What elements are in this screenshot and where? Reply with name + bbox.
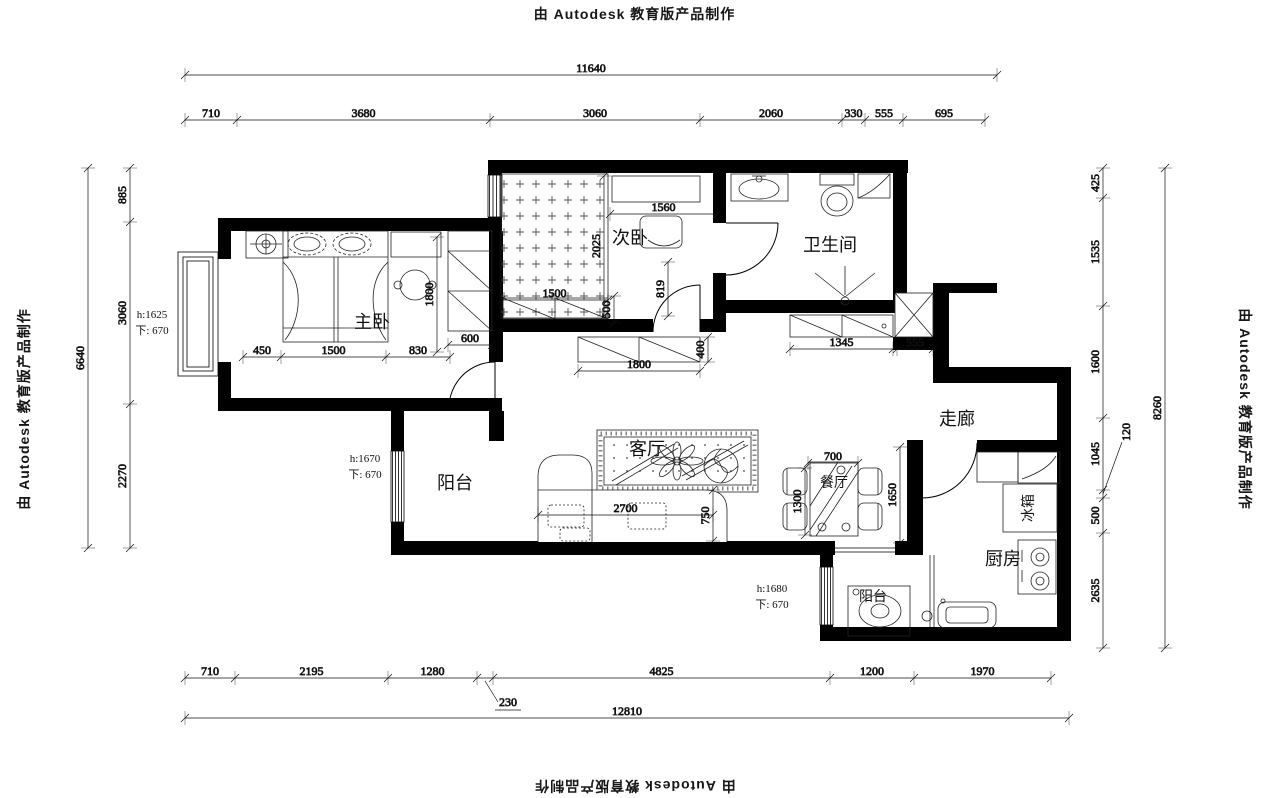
dim-tatami-1500-label: 1500 — [543, 286, 567, 300]
window-balcony-left — [391, 451, 404, 522]
bath-corner-shelf — [858, 174, 890, 198]
dim-top-segments-label: 710 — [202, 106, 220, 120]
dim-right-segments-label: 1045 — [1088, 442, 1102, 466]
dim-table-1300: 1300 — [790, 464, 812, 539]
bath-cabinet — [790, 315, 893, 337]
dim-right-segments-label: 2635 — [1088, 579, 1102, 603]
dim-bed-row-label: 1500 — [322, 343, 346, 357]
dim-bed-row-label: 830 — [409, 343, 427, 357]
dim-left-total-label: 6640 — [73, 346, 87, 370]
window-second-bedroom — [488, 175, 502, 217]
room-label-master: 主卧 — [354, 312, 390, 333]
dim-hallcab-1800-label: 1800 — [627, 357, 651, 371]
dim-hallcab-1800: 1800 — [574, 357, 704, 378]
dim-bottom-segments: 71021951280482512001970 — [181, 664, 1055, 685]
toilet-icon — [820, 174, 854, 216]
dim-top-total-label: 11640 — [576, 61, 606, 75]
dim-table-700-label: 700 — [824, 449, 842, 463]
balcony-bottom-threshold — [833, 548, 895, 552]
watermark-top: 由 Autodesk 教育版产品制作 — [534, 4, 736, 24]
room-label-kitchen: 厨房 — [985, 549, 1021, 570]
ceiling-lamp-icon — [246, 231, 288, 258]
dim-left-total: 6640 — [73, 164, 95, 552]
dim-sofa-2700-label: 2700 — [614, 501, 638, 515]
dim-right-total-label: 8260 — [1150, 396, 1164, 420]
room-label-balcony_left: 阳台 — [437, 473, 473, 494]
dim-dining-1650-label: 1650 — [885, 483, 899, 507]
floorplan-canvas: 由 Autodesk 教育版产品制作 由 Autodesk 教育版产品制作 由 … — [0, 0, 1269, 798]
room-label-bathroom: 卫生间 — [803, 235, 857, 256]
window-note-master-height: h:1625 — [137, 309, 168, 321]
door-bathroom — [726, 223, 778, 275]
dim-dining-1650: 1650 — [885, 443, 907, 547]
window-note-balcony_bottom-sill: 下: 670 — [755, 599, 789, 611]
dim-bottom-total: 12810 — [181, 704, 1073, 725]
dim-left-segments: 88530602270 — [115, 164, 137, 552]
dim-door-819-label: 819 — [653, 280, 667, 298]
watermark-right: 由 Autodesk 教育版产品制作 — [1235, 299, 1255, 519]
dim-hallcab-400-label: 400 — [693, 341, 707, 359]
dim-wardrobe-600-label: 600 — [461, 331, 479, 345]
dim-top-segments-label: 2060 — [759, 106, 783, 120]
dim-right-segments-label: 1535 — [1088, 240, 1102, 264]
room-label-balcony_bottom: 阳台 — [859, 589, 887, 605]
dim-right-leader-label: 120 — [1119, 423, 1133, 441]
window-note-master-sill: 下: 670 — [135, 325, 169, 337]
dim-sofa-750-label: 750 — [698, 507, 712, 525]
nightstand — [391, 232, 441, 257]
dim-right-total: 8260 — [1150, 164, 1172, 652]
dim-wardrobe-600: 600 — [444, 331, 496, 352]
dim-top-segments-label: 3060 — [583, 106, 607, 120]
dim-bottom-segments-label: 1200 — [860, 664, 884, 678]
bay-window-master — [178, 252, 218, 376]
dim-second-1560: 1560 — [606, 200, 721, 221]
door-kitchen — [922, 443, 977, 498]
dim-bed-row-label: 450 — [253, 343, 271, 357]
floorplan-drawing: 1164071036803060206033055569566408853060… — [0, 0, 1269, 798]
stove-icon — [1018, 540, 1056, 594]
dim-bottom-leader-label: 230 — [499, 695, 517, 709]
shaft-box — [895, 293, 933, 337]
dim-right-segments-label: 1600 — [1088, 350, 1102, 374]
room-label-corridor: 走廊 — [939, 409, 975, 430]
dim-table-1300-label: 1300 — [790, 490, 804, 514]
watermark-left: 由 Autodesk 教育版产品制作 — [14, 299, 34, 519]
dim-bottom-segments-label: 1970 — [971, 664, 995, 678]
dim-door-819: 819 — [653, 258, 675, 320]
dim-table-700: 700 — [804, 449, 862, 470]
room-label-dining: 餐厅 — [820, 475, 848, 491]
watermark-bottom: 由 Autodesk 教育版产品制作 — [534, 776, 736, 796]
dim-second-2025-label: 2025 — [589, 234, 603, 258]
dim-left-segments-label: 885 — [115, 186, 129, 204]
dim-second-1560-label: 1560 — [652, 200, 676, 214]
dim-bathcab-1345-label: 1345 — [830, 335, 854, 349]
room-label-fridge: 冰箱 — [1021, 494, 1037, 522]
dim-right-segments-label: 425 — [1088, 174, 1102, 192]
kitchen-sink-icon — [938, 599, 996, 628]
wardrobe-master — [448, 231, 492, 331]
cabinet-second-top — [612, 176, 700, 202]
dim-top-total: 11640 — [181, 61, 1001, 82]
dim-left-segments-label: 2270 — [115, 464, 129, 488]
dim-top-segments-label: 695 — [935, 106, 953, 120]
dim-bottom-segments-label: 710 — [201, 664, 219, 678]
dim-hallcab-400: 400 — [693, 333, 715, 366]
dim-bottom-segments-label: 2195 — [300, 664, 324, 678]
dim-top-segments-label: 555 — [875, 106, 893, 120]
dim-right-segments: 4251535160010455002635 — [1088, 164, 1110, 652]
dim-master-1800-label: 1800 — [422, 283, 436, 307]
kitchen-counter — [977, 452, 1060, 483]
dim-top-segments-label: 3680 — [352, 106, 376, 120]
rug-living — [597, 430, 758, 492]
balcony-drain-icon — [922, 611, 932, 621]
window-balcony-bottom — [820, 567, 833, 625]
room-label-living: 客厅 — [629, 439, 665, 460]
sink-icon — [731, 174, 788, 201]
dim-bottom-segments-label: 1280 — [421, 664, 445, 678]
window-note-balcony_bottom-height: h:1680 — [757, 583, 788, 595]
floor-drain-icon — [815, 266, 875, 305]
dim-bed-row: 4501500830 — [239, 343, 454, 364]
dim-cabinet-500-label: 500 — [599, 301, 613, 319]
dim-shaft-555-label: 555 — [906, 335, 924, 349]
dim-top-segments-label: 330 — [845, 106, 863, 120]
window-note-balcony_left-sill: 下: 670 — [348, 469, 382, 481]
window-note-balcony_left-height: h:1670 — [350, 453, 381, 465]
dim-top-segments: 710368030602060330555695 — [181, 106, 989, 127]
dim-left-segments-label: 3060 — [115, 301, 129, 325]
room-label-second: 次卧 — [612, 228, 648, 249]
dim-bottom-segments-label: 4825 — [650, 664, 674, 678]
dim-right-segments-label: 500 — [1088, 507, 1102, 525]
dining-table — [810, 462, 858, 536]
dim-bathcab-1345: 1345 — [786, 335, 897, 356]
dim-bottom-total-label: 12810 — [612, 704, 642, 718]
